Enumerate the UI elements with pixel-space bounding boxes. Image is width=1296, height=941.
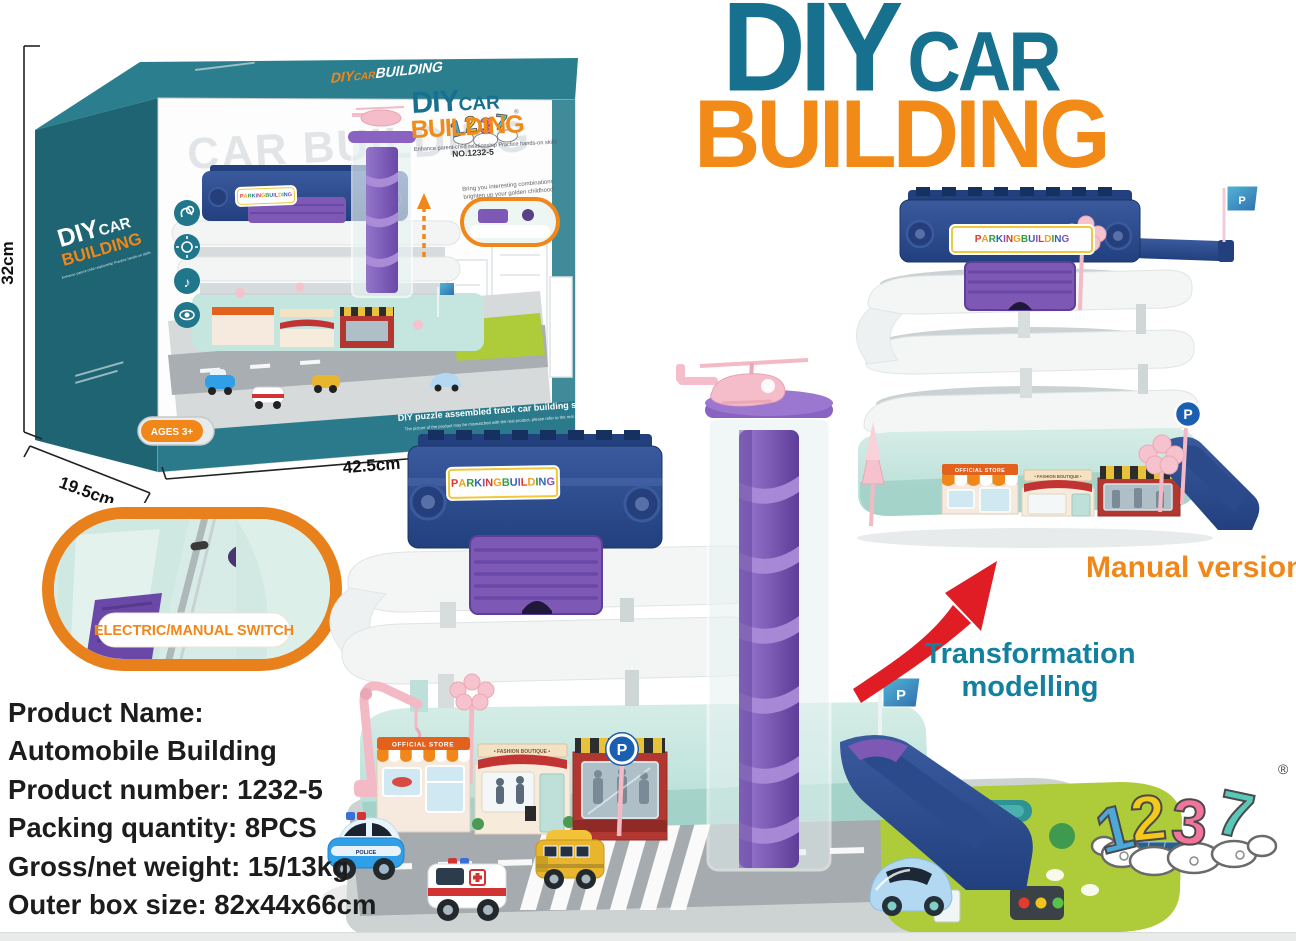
transformation-line2: modelling — [900, 671, 1160, 704]
manual-sign-text: PARKING BUILDING — [975, 234, 1070, 245]
manual-shop-fashion-label: • FASHION BOUTIQUE • — [1034, 474, 1082, 479]
bottom-edge-strip — [0, 932, 1296, 941]
box-mini-switch-callout — [462, 199, 558, 245]
page-title-line2: BUILDING — [694, 80, 1107, 185]
ages-badge-label: AGES 3+ — [151, 427, 194, 438]
manual-garage-door — [965, 262, 1075, 310]
manual-parking-sign-letter: P — [1183, 406, 1192, 422]
title-building: BUILDING — [694, 80, 1107, 190]
bush — [1049, 823, 1075, 849]
dim-height-label: 32cm — [0, 241, 17, 284]
manual-flag-letter: P — [1238, 195, 1245, 207]
main-parking-building-sign: PARKING BUILDING — [448, 467, 559, 499]
svg-text:♪: ♪ — [184, 274, 191, 290]
shop-fashion-boutique: • FASHION BOUTIQUE • — [472, 744, 575, 834]
product-advert-canvas: DIYCAR BUILDING DIYCARBUILDING — [0, 0, 1296, 941]
transformation-line1: Transformation — [900, 638, 1160, 671]
gross-net-weight: Gross/net weight: 15/13kg — [8, 848, 376, 886]
brand-logo: 1 2 3 7 ® — [1082, 756, 1292, 881]
manual-flag-arm: P — [1133, 186, 1258, 262]
music-note-icon: ♪ — [184, 274, 191, 290]
box-sign-text: PARKING BUILDING — [240, 192, 292, 200]
manual-version-label: Manual version — [1086, 551, 1296, 585]
registered-mark: ® — [1278, 761, 1289, 777]
main-sign-text: PARKING BUILDING — [451, 476, 555, 490]
box-front-building: BUILDING — [410, 110, 524, 144]
parking-sign-letter: P — [617, 742, 628, 759]
switch-callout: ELECTRIC/MANUAL SWITCH — [40, 505, 350, 700]
box-left-face — [35, 98, 158, 472]
shop-official-store: OFFICIAL STORE — [377, 737, 470, 832]
traffic-light — [1010, 886, 1064, 920]
transformation-label: Transformation modelling — [900, 638, 1160, 704]
logo-digit-2: 2 — [1127, 780, 1170, 855]
product-name-value: Automobile Building — [8, 732, 376, 770]
manual-shops-row: OFFICIAL STORE • FASHION BOUTIQUE • — [942, 464, 1180, 516]
manual-shop-fashion: • FASHION BOUTIQUE • — [1022, 470, 1094, 516]
shop-fashion-label: • FASHION BOUTIQUE • — [494, 749, 551, 755]
product-info-block: Product Name: Automobile Building Produc… — [8, 694, 376, 924]
callout-label: ELECTRIC/MANUAL SWITCH — [94, 623, 294, 639]
product-name-label: Product Name: — [8, 694, 376, 732]
elevator-tower — [705, 390, 833, 870]
outer-box-size: Outer box size: 82x44x66cm — [8, 886, 376, 924]
logo-digit-3: 3 — [1169, 785, 1210, 859]
ages-badge: AGES 3+ — [138, 417, 214, 445]
shop-official-label: OFFICIAL STORE — [392, 742, 454, 749]
manual-shop-official: OFFICIAL STORE — [942, 464, 1018, 514]
manual-shop-official-label: OFFICIAL STORE — [955, 468, 1005, 474]
product-number: Product number: 1232-5 — [8, 771, 376, 809]
packing-quantity: Packing quantity: 8PCS — [8, 809, 376, 847]
manual-parking-building-sign: PARKING BUILDING — [951, 226, 1093, 253]
box-parking-building-sign: PARKING BUILDING — [237, 187, 296, 205]
garage-door — [470, 536, 602, 614]
